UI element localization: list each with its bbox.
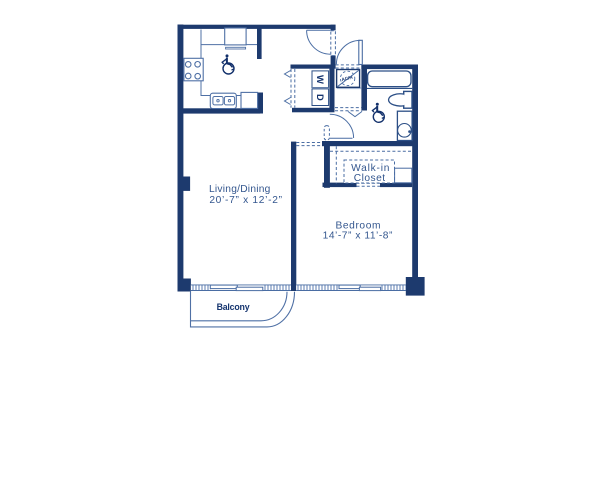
- svg-text:Balcony: Balcony: [217, 302, 250, 312]
- svg-text:D: D: [315, 94, 326, 101]
- svg-text:Closet: Closet: [354, 173, 386, 184]
- svg-text:Living/Dining: Living/Dining: [209, 184, 271, 195]
- svg-text:14’-7” x 11’-8”: 14’-7” x 11’-8”: [323, 230, 393, 241]
- svg-text:W: W: [315, 75, 326, 84]
- svg-text:20’-7” x 12’-2”: 20’-7” x 12’-2”: [209, 195, 282, 206]
